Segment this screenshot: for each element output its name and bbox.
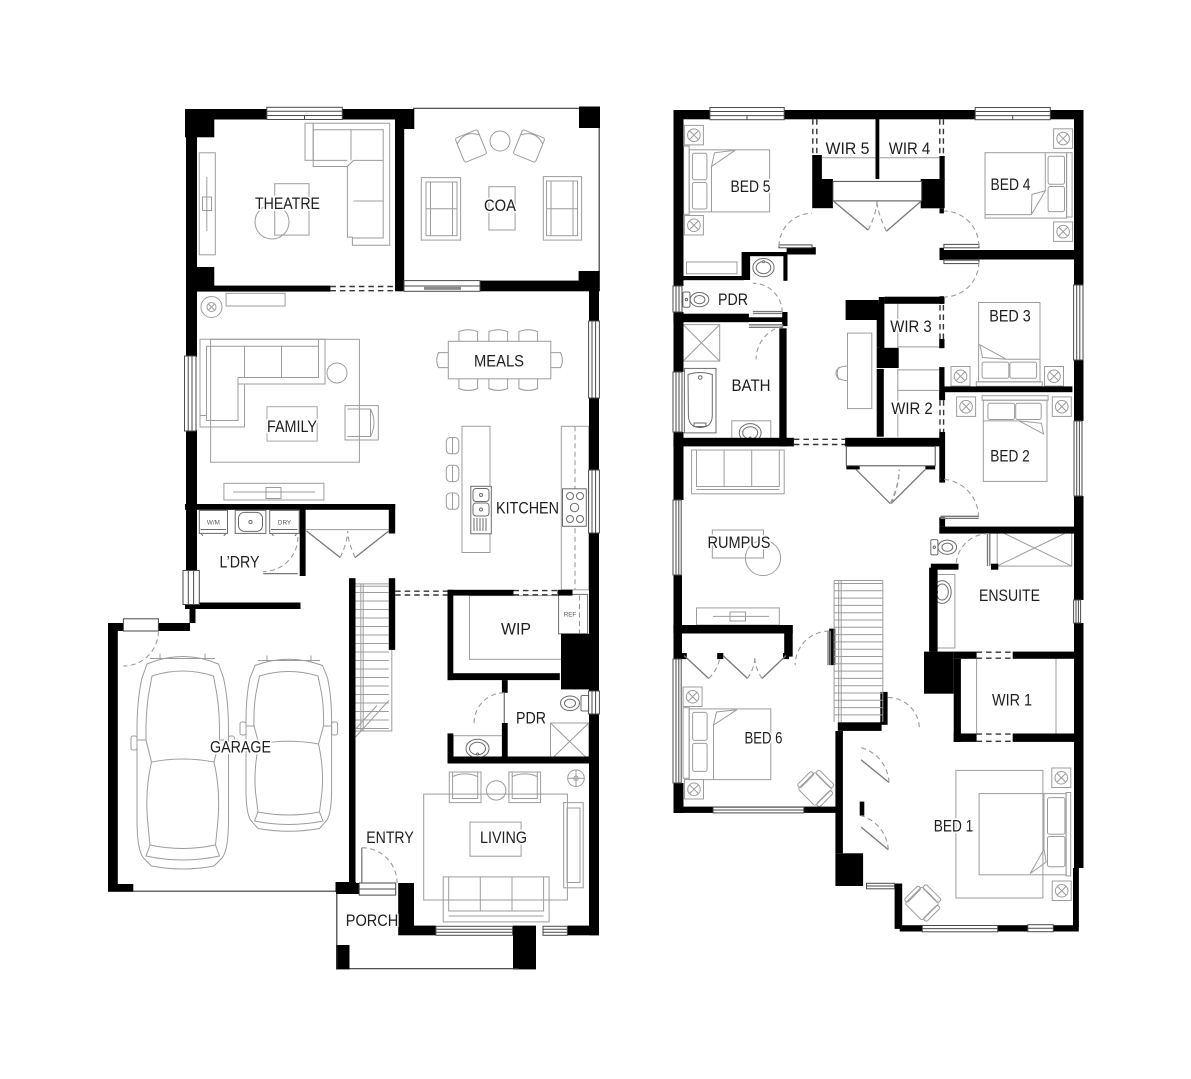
- svg-text:BATH: BATH: [732, 377, 771, 395]
- svg-text:WIR 3: WIR 3: [890, 318, 932, 336]
- svg-text:WIR 2: WIR 2: [891, 400, 933, 418]
- svg-text:BED 1: BED 1: [934, 818, 974, 836]
- svg-text:ENSUITE: ENSUITE: [979, 587, 1040, 605]
- svg-text:FAMILY: FAMILY: [267, 418, 317, 436]
- svg-text:MEALS: MEALS: [474, 353, 524, 371]
- svg-text:LIVING: LIVING: [480, 829, 527, 847]
- svg-text:BED 4: BED 4: [991, 176, 1031, 194]
- svg-text:BED 3: BED 3: [989, 308, 1031, 326]
- svg-text:COA: COA: [484, 197, 516, 215]
- svg-text:RUMPUS: RUMPUS: [708, 534, 771, 552]
- svg-text:WIR 1: WIR 1: [992, 692, 1032, 710]
- svg-text:GARAGE: GARAGE: [210, 739, 271, 757]
- svg-text:DRY: DRY: [278, 520, 292, 527]
- svg-text:BED 2: BED 2: [990, 448, 1030, 466]
- svg-text:PDR: PDR: [516, 710, 546, 728]
- svg-text:REF: REF: [564, 612, 577, 619]
- svg-text:L’DRY: L’DRY: [220, 554, 260, 572]
- svg-text:BED 6: BED 6: [745, 730, 783, 748]
- svg-text:WIR 5: WIR 5: [826, 140, 870, 158]
- svg-text:THEATRE: THEATRE: [255, 195, 320, 213]
- svg-text:BED 5: BED 5: [731, 178, 771, 196]
- svg-text:ENTRY: ENTRY: [366, 829, 414, 847]
- svg-text:KITCHEN: KITCHEN: [496, 500, 559, 518]
- svg-text:WIP: WIP: [501, 621, 531, 639]
- svg-text:PDR: PDR: [718, 291, 748, 309]
- svg-text:PORCH: PORCH: [346, 912, 399, 930]
- svg-text:W/M: W/M: [207, 520, 220, 527]
- svg-text:WIR 4: WIR 4: [889, 140, 931, 158]
